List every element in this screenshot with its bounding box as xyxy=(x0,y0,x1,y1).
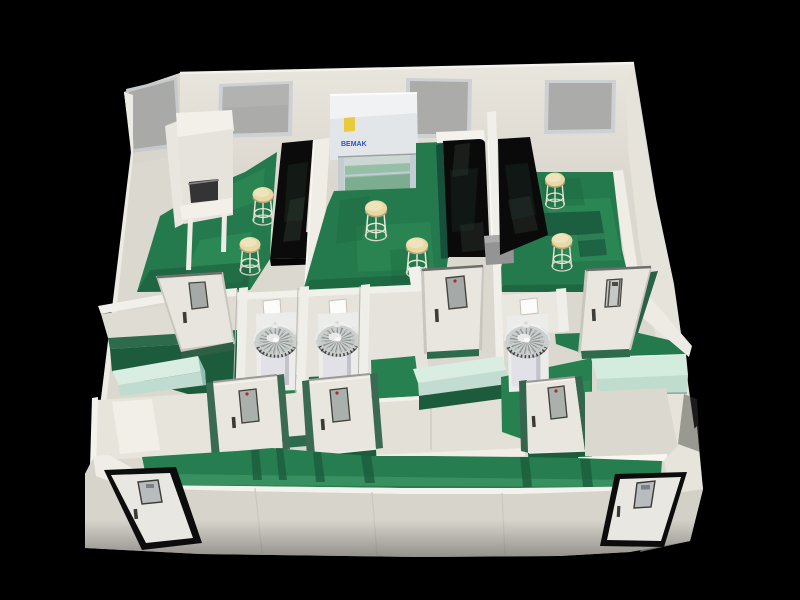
svg-text:BEMAK: BEMAK xyxy=(341,141,367,148)
